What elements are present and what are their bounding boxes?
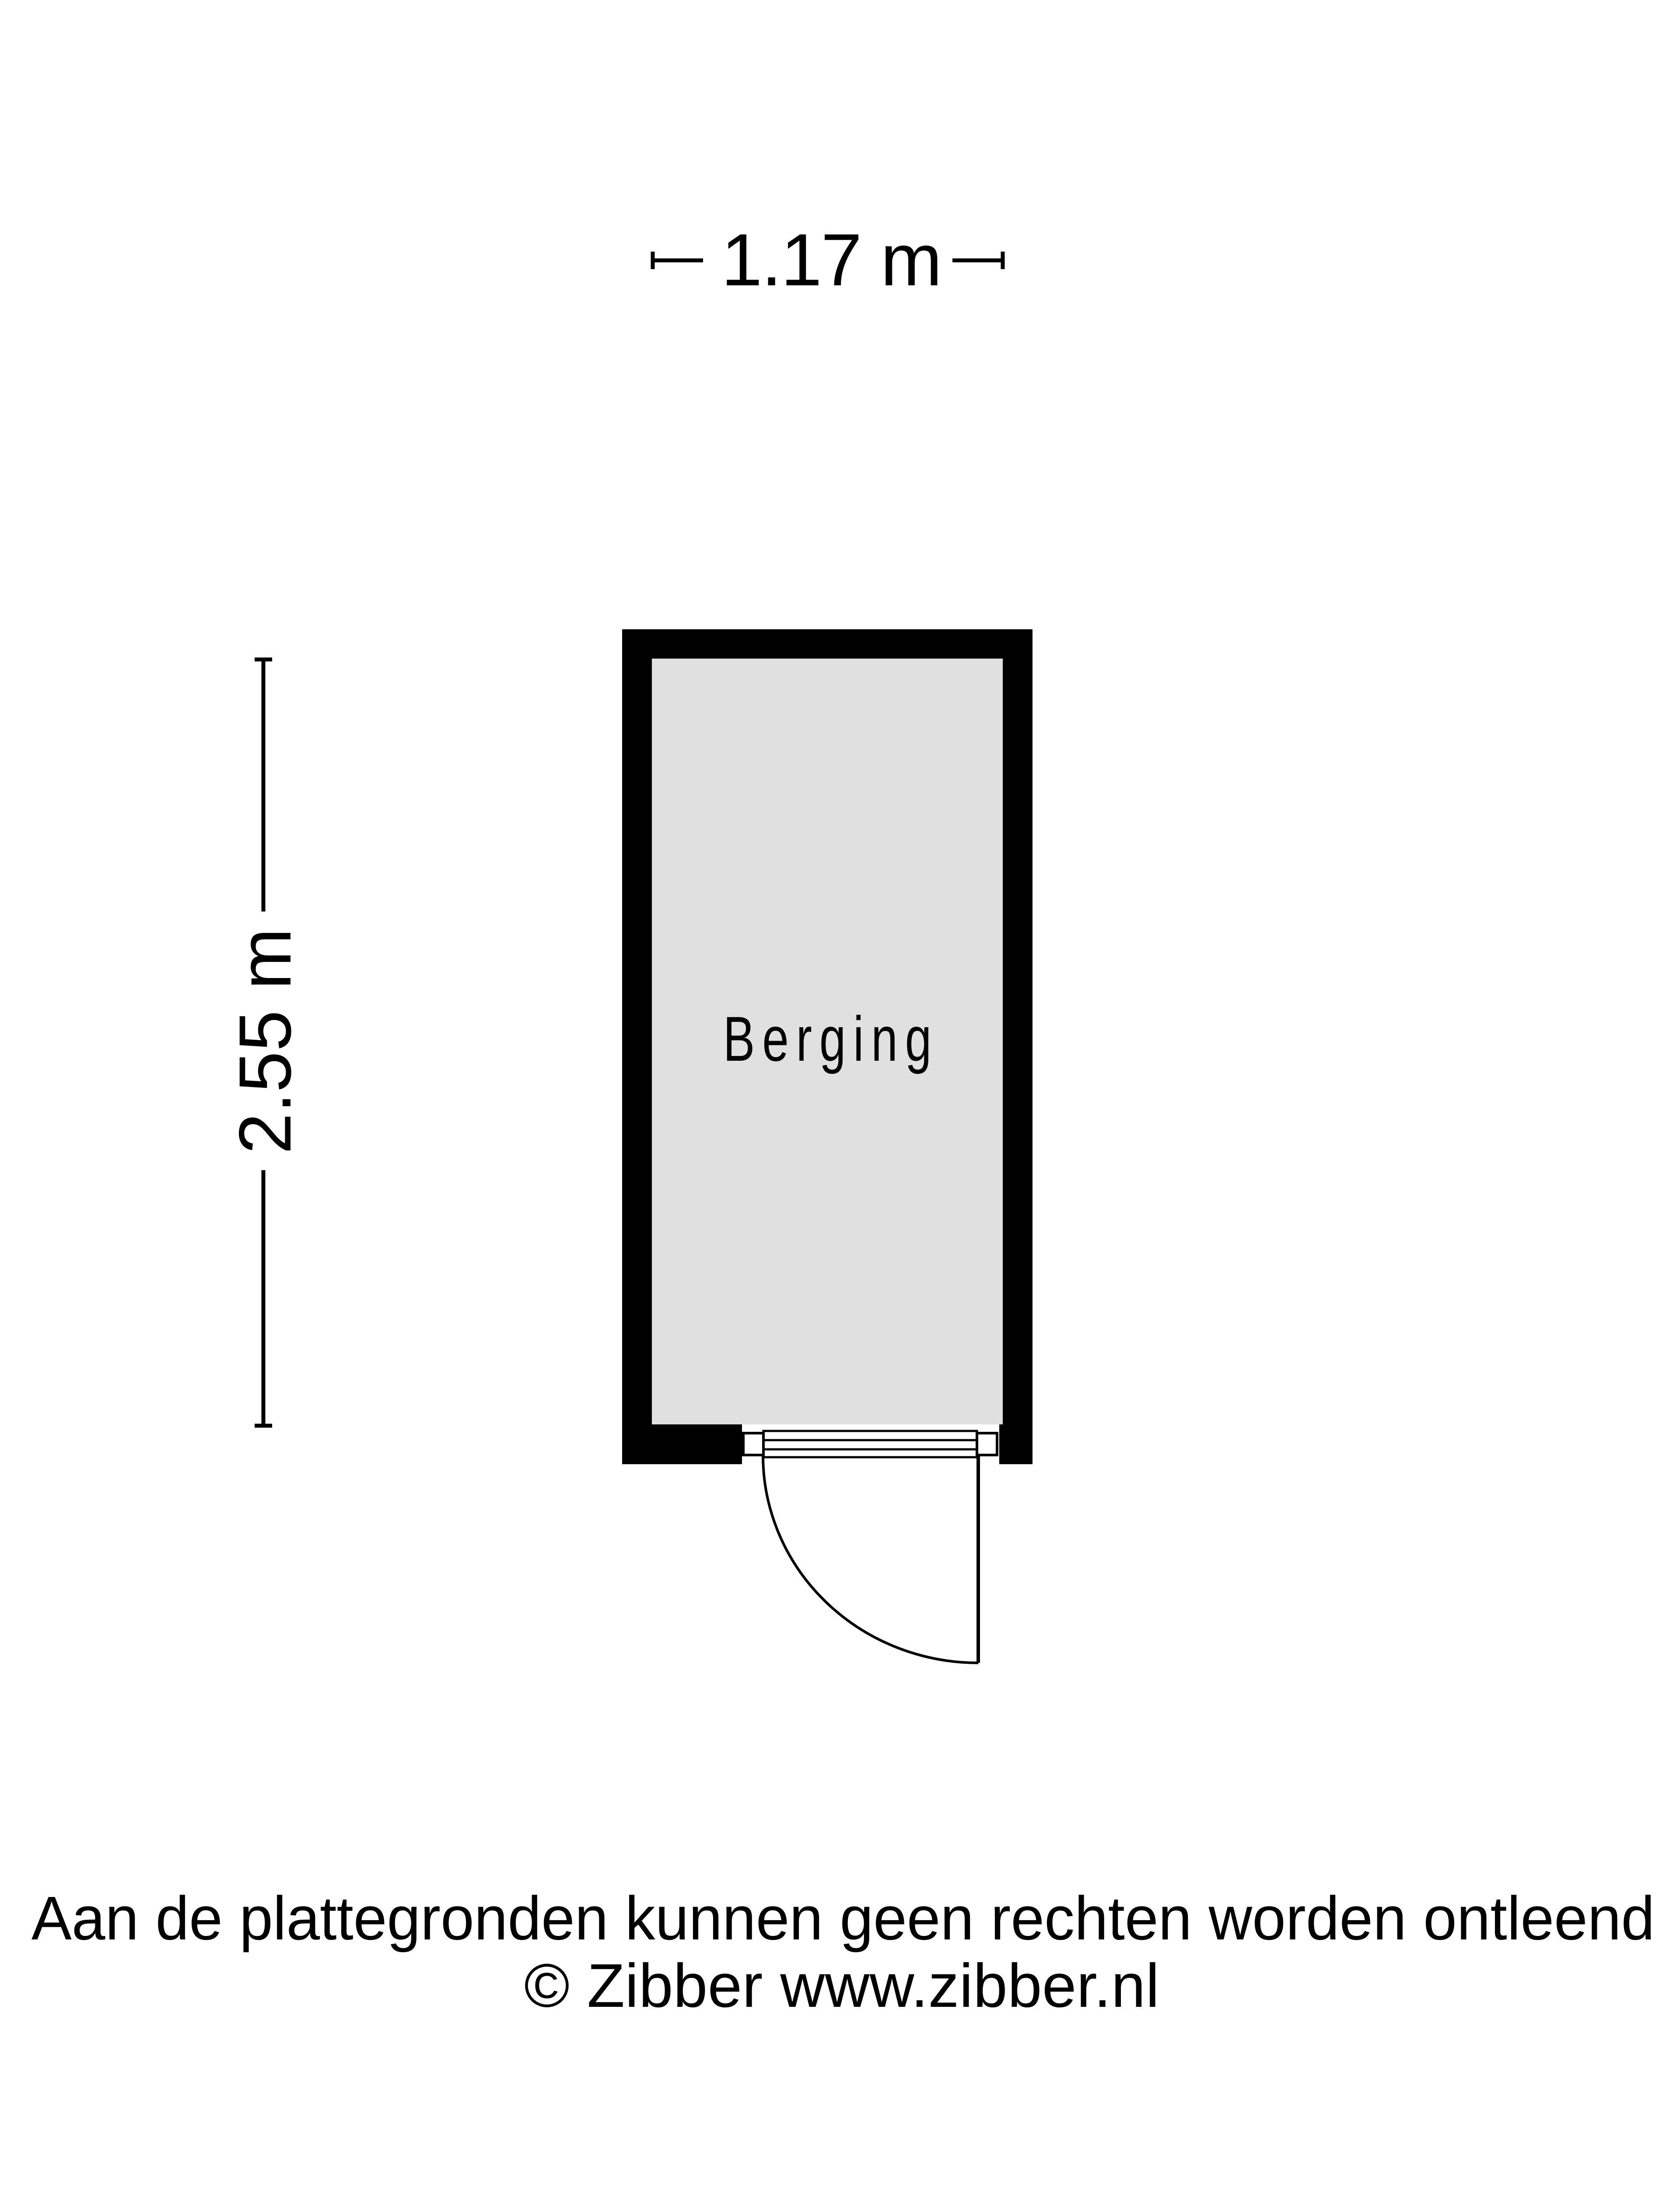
svg-text:© Zibber www.zibber.nl: © Zibber www.zibber.nl	[524, 1951, 1159, 2020]
svg-text:2.55 m: 2.55 m	[224, 928, 306, 1154]
svg-text:1.17 m: 1.17 m	[721, 218, 942, 301]
svg-text:Aan de plattegronden kunnen ge: Aan de plattegronden kunnen geen rechten…	[31, 1884, 1655, 1953]
